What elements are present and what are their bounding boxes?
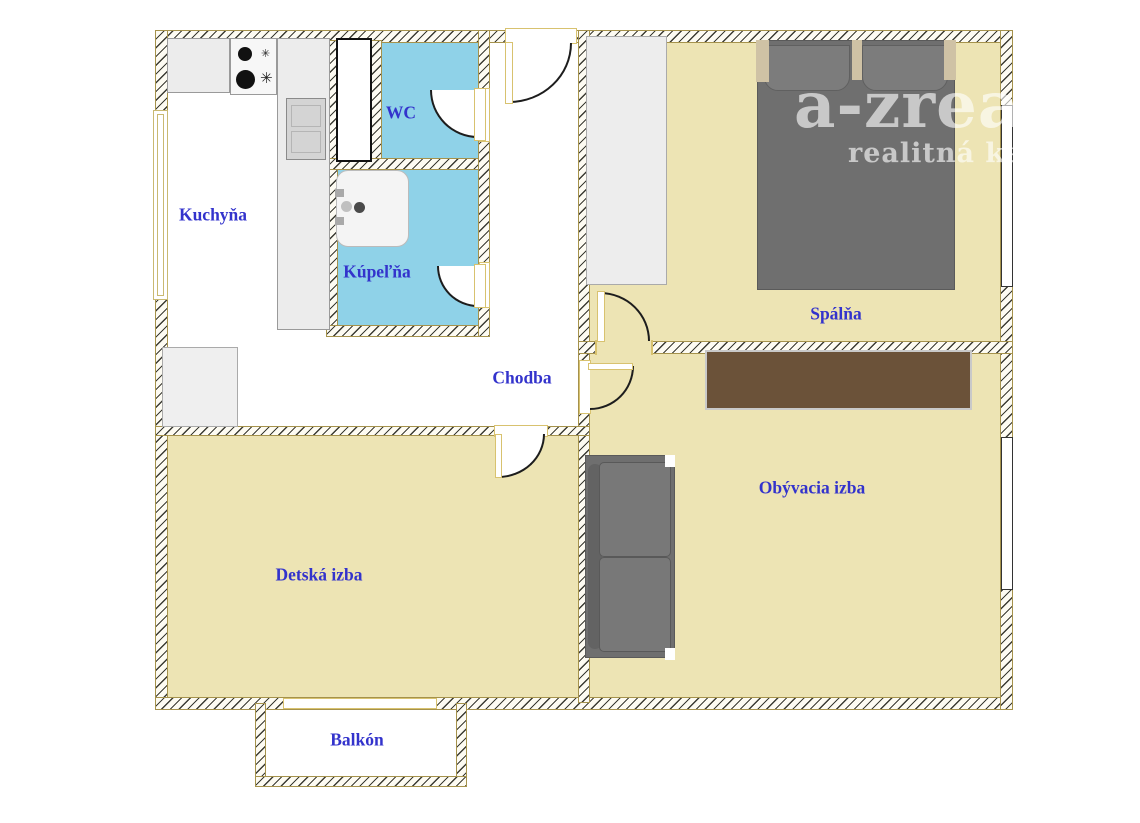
burner-flame-icon: ✳ [260,71,273,86]
faucet-handle-icon [335,189,344,197]
balcony-wall-bottom [255,776,467,787]
burner-flame-icon: ✳ [261,48,270,59]
burner-icon [238,47,252,61]
sofa-corner [665,455,675,467]
balcony-wall-right [456,703,467,787]
hallway-label: Chodba [492,368,551,389]
bed-pillow [862,45,948,91]
bedroom-window [1001,105,1013,287]
kids-room-door-leaf [495,434,502,478]
sofa-cushion [599,462,671,557]
balcony-sliding-door [283,698,437,709]
bathtub [336,170,409,247]
stove: ✳ ✳ [230,38,277,95]
kitchen-label: Kuchyňa [179,205,247,226]
tall-cabinet [336,38,372,162]
entrance-door-swing [509,43,572,103]
wall-bath-bottom [326,325,490,337]
headboard-post [756,40,769,82]
wc-door-leaf [474,88,486,141]
bedroom-doorway [595,340,653,355]
faucet-icon [341,201,352,212]
kitchen-window [153,110,168,300]
floor-plan: ✳ ✳ [0,0,1140,823]
living-room-door-leaf [588,363,633,370]
headboard-post [944,40,956,80]
sofa [585,455,675,658]
headboard-post [852,40,862,80]
kitchen-counter-column [277,38,330,330]
faucet-handle-icon [335,217,344,225]
bathroom-door-leaf [474,264,486,308]
drain-icon [354,202,365,213]
sofa-cushion [599,557,671,652]
bed-pillow [764,45,850,91]
balcony-label: Balkón [330,730,384,751]
living-room-window [1001,437,1013,590]
fridge [162,347,238,427]
kitchen-counter-top [167,38,230,93]
wardrobe [586,36,667,285]
living-room-label: Obývacia izba [759,478,865,499]
bathroom-label: Kúpeľňa [343,262,411,283]
wc-label: WC [386,103,416,124]
entrance-door-leaf [505,42,513,104]
double-bed [757,40,955,290]
bedroom-label: Spálňa [810,304,862,325]
brown-cabinet [705,350,972,410]
bedroom-door-leaf [597,291,605,342]
kids-room-label: Detská izba [275,565,362,586]
sink-unit [286,98,326,160]
sofa-corner [665,648,675,660]
entrance-doorway [505,28,577,44]
balcony-wall-left [255,703,266,787]
burner-icon [236,70,255,89]
